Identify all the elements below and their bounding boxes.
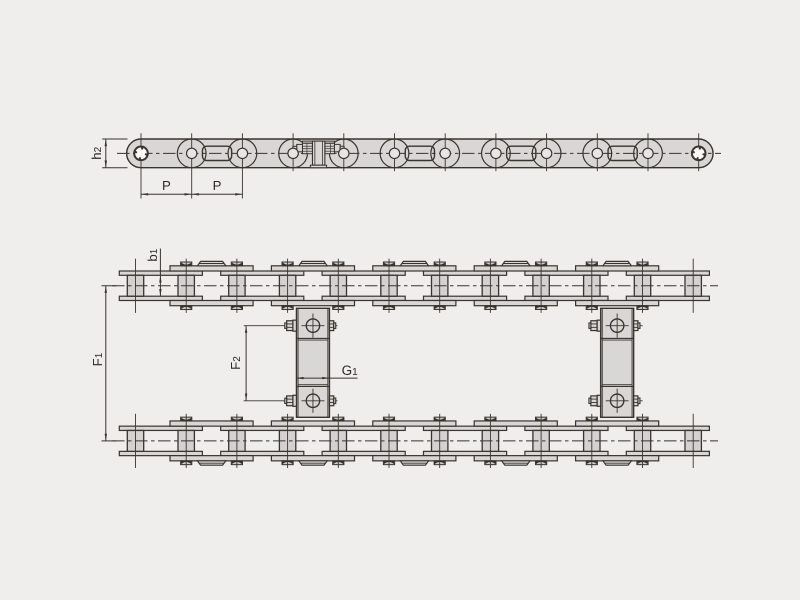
svg-text:P: P [213,178,222,193]
svg-text:P: P [162,178,171,193]
